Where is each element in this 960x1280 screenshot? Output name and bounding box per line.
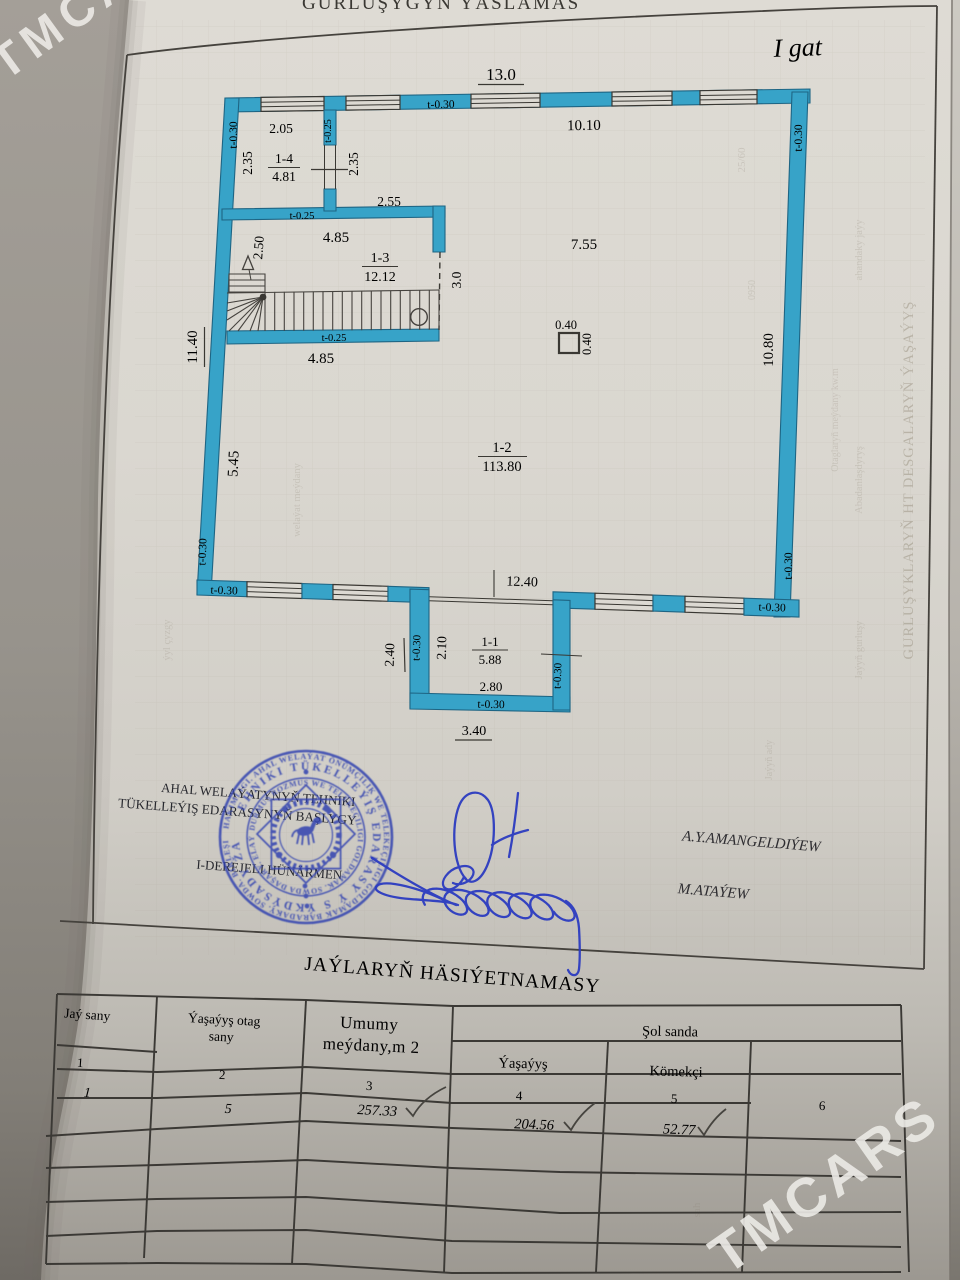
svg-text:2.80: 2.80 bbox=[480, 679, 503, 694]
svg-text:2.35: 2.35 bbox=[240, 151, 255, 175]
svg-text:5.45: 5.45 bbox=[225, 450, 242, 477]
svg-text:10.10: 10.10 bbox=[567, 118, 601, 135]
svg-text:0.40: 0.40 bbox=[580, 333, 594, 355]
svg-text:10.80: 10.80 bbox=[761, 333, 777, 367]
svg-text:4.85: 4.85 bbox=[323, 230, 349, 246]
svg-text:2.10: 2.10 bbox=[434, 636, 450, 660]
svg-text:t-0.30: t-0.30 bbox=[758, 602, 786, 615]
svg-text:GURLUŞYGYN ÝASLAMAS: GURLUŞYGYN ÝASLAMAS bbox=[302, 0, 580, 14]
svg-text:1: 1 bbox=[83, 1086, 91, 1101]
svg-text:1-4: 1-4 bbox=[275, 151, 293, 166]
svg-text:2.40: 2.40 bbox=[382, 643, 398, 667]
svg-text:Kömekçi: Kömekçi bbox=[649, 1063, 703, 1080]
svg-text:4.85: 4.85 bbox=[308, 351, 334, 367]
svg-text:t-0.30: t-0.30 bbox=[783, 552, 795, 579]
svg-text:0.40: 0.40 bbox=[555, 318, 577, 332]
svg-text:I gat: I gat bbox=[772, 32, 823, 63]
svg-text:2.35: 2.35 bbox=[346, 152, 361, 176]
svg-text:2.55: 2.55 bbox=[377, 194, 401, 209]
svg-text:Şol sanda: Şol sanda bbox=[642, 1024, 699, 1041]
svg-text:1-2: 1-2 bbox=[492, 440, 511, 456]
svg-text:13.0: 13.0 bbox=[486, 65, 516, 84]
svg-text:ahandaky jaýy: ahandaky jaýy bbox=[854, 219, 865, 281]
svg-text:t-0.30: t-0.30 bbox=[228, 121, 240, 148]
svg-text:257.33: 257.33 bbox=[357, 1102, 398, 1120]
svg-text:11.40: 11.40 bbox=[185, 330, 201, 363]
svg-text:ýyl çyzgy: ýyl çyzgy bbox=[162, 619, 173, 661]
svg-text:sany: sany bbox=[208, 1028, 234, 1044]
svg-text:Abadanlaşdyryş: Abadanlaşdyryş bbox=[854, 446, 865, 514]
svg-text:4.81: 4.81 bbox=[272, 169, 296, 184]
svg-text:12.40: 12.40 bbox=[506, 574, 538, 590]
svg-text:t-0.30: t-0.30 bbox=[427, 99, 455, 111]
svg-text:12.12: 12.12 bbox=[364, 270, 396, 285]
svg-text:t-0.25: t-0.25 bbox=[323, 119, 334, 143]
svg-text:5.88: 5.88 bbox=[479, 652, 502, 667]
svg-text:t-0.25: t-0.25 bbox=[290, 211, 315, 222]
svg-text:GURLUŞYKLARYŇ HT DESGALARYŇ ÝA: GURLUŞYKLARYŇ HT DESGALARYŇ ÝAŞAÝYŞ bbox=[900, 301, 917, 660]
svg-text:5: 5 bbox=[224, 1102, 232, 1117]
svg-text:2: 2 bbox=[219, 1067, 226, 1082]
svg-text:Jaýyň gurluşy: Jaýyň gurluşy bbox=[854, 620, 865, 679]
svg-text:t-0.30: t-0.30 bbox=[197, 538, 210, 566]
svg-text:t-0.30: t-0.30 bbox=[210, 585, 238, 598]
svg-text:t-0.30: t-0.30 bbox=[477, 699, 505, 711]
svg-text:Jaýyň ady: Jaýyň ady bbox=[764, 740, 775, 780]
svg-text:2.50: 2.50 bbox=[250, 235, 267, 260]
svg-text:1: 1 bbox=[77, 1055, 85, 1070]
svg-text:2.05: 2.05 bbox=[269, 121, 293, 136]
svg-text:4: 4 bbox=[516, 1088, 524, 1103]
svg-text:t-0.25: t-0.25 bbox=[322, 333, 347, 344]
svg-text:25/60: 25/60 bbox=[736, 147, 748, 173]
svg-text:1-1: 1-1 bbox=[481, 634, 498, 649]
svg-text:7.55: 7.55 bbox=[571, 237, 597, 253]
svg-text:113.80: 113.80 bbox=[482, 459, 521, 475]
svg-text:sah: sah bbox=[691, 1202, 703, 1217]
svg-text:1-3: 1-3 bbox=[371, 251, 390, 266]
svg-text:t-0.30: t-0.30 bbox=[793, 124, 805, 151]
svg-text:t-0.30: t-0.30 bbox=[552, 662, 565, 689]
svg-text:3.40: 3.40 bbox=[462, 724, 487, 739]
svg-text:6: 6 bbox=[819, 1098, 827, 1113]
svg-text:5: 5 bbox=[671, 1091, 678, 1106]
svg-text:3.0: 3.0 bbox=[449, 271, 464, 288]
svg-text:0950: 0950 bbox=[747, 280, 758, 300]
svg-text:Umumy: Umumy bbox=[340, 1013, 399, 1035]
svg-text:welaýat meýdany: welaýat meýdany bbox=[292, 462, 303, 537]
svg-text:Ýaşaýyş: Ýaşaýyş bbox=[498, 1054, 548, 1072]
svg-text:t-0.30: t-0.30 bbox=[411, 634, 424, 661]
svg-text:3: 3 bbox=[366, 1078, 373, 1093]
svg-text:204.56: 204.56 bbox=[514, 1116, 555, 1133]
svg-text:52.77: 52.77 bbox=[663, 1121, 697, 1138]
svg-text:Otaglaryň meýdany kw.m: Otaglaryň meýdany kw.m bbox=[830, 368, 841, 472]
